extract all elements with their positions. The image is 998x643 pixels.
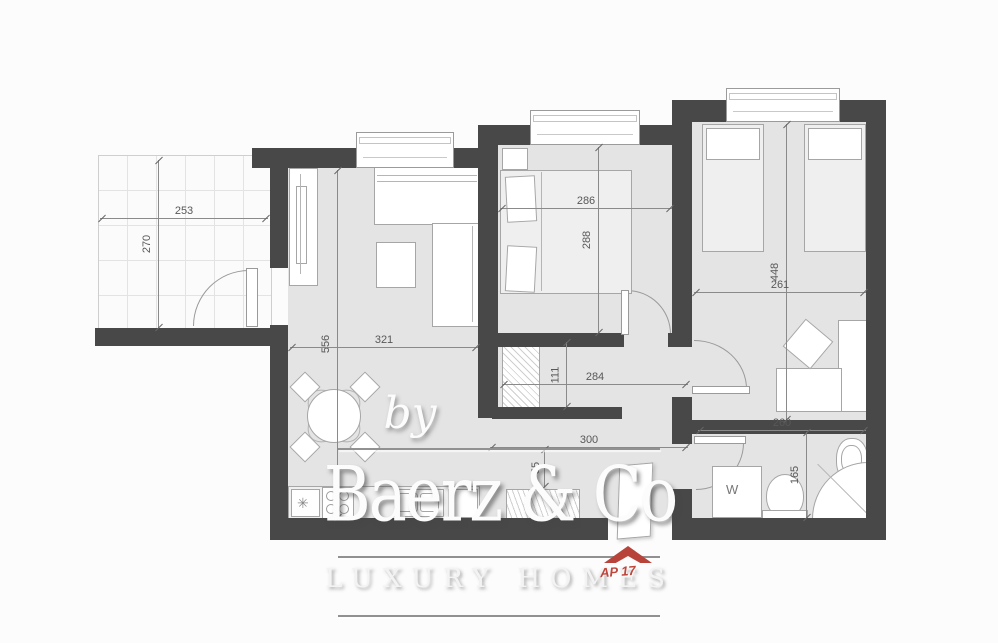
bedroom2-window (726, 88, 840, 122)
wall-bedroom2-left-lower (672, 397, 692, 420)
sofa-back-line (377, 181, 477, 182)
bathroom-door-leaf (694, 436, 746, 444)
wall-right (866, 100, 886, 540)
wall-bottom-right (672, 518, 886, 540)
dimension-bedroom2-length: 448 (786, 124, 787, 420)
dimension-label: 300 (580, 434, 598, 446)
dimension-label: 286 (577, 195, 595, 207)
bedroom1-window (530, 110, 640, 145)
wall-niche-bottom (492, 407, 622, 419)
nightstand (502, 148, 528, 170)
pillow (505, 245, 537, 293)
wall-bedroom1-bedroom2 (672, 100, 692, 333)
watermark-prefix: by (350, 388, 470, 439)
wall-bedroom1-bottom-right (668, 333, 692, 347)
pillow (808, 128, 862, 160)
dimension-label: 253 (175, 205, 193, 217)
wall-top-living-left (252, 148, 362, 168)
dimension-living-width: 321 (290, 347, 478, 348)
living-room-window (356, 132, 454, 168)
dimension-terrace-depth: 270 (158, 160, 159, 328)
dimension-label: 556 (320, 335, 332, 353)
dimension-label: 321 (375, 334, 393, 346)
dimension-label: 270 (141, 235, 153, 253)
coffee-table (376, 242, 416, 288)
dimension-label: 284 (586, 371, 604, 383)
dimension-label: 261 (771, 279, 789, 291)
dimension-bedroom1-width: 286 (500, 208, 672, 209)
window-sill-line (363, 157, 447, 158)
wall-living-bedroom1 (478, 125, 498, 418)
washing-machine-label: W (726, 482, 738, 497)
sofa-back-line (377, 175, 477, 176)
bedroom2-door-leaf (692, 386, 750, 394)
desk-side (838, 320, 868, 412)
dimension-label: 260 (773, 417, 791, 429)
wardrobe (502, 342, 540, 410)
dimension-niche-depth: 111 (566, 342, 567, 407)
bedroom1-door-leaf (621, 290, 629, 335)
dimension-label: 111 (550, 366, 562, 383)
dimension-niche-width: 284 (502, 384, 688, 385)
tv (296, 186, 307, 264)
unit-badge: AP 17 (600, 563, 637, 580)
sofa-back-line (472, 226, 473, 322)
wall-left-lower (270, 325, 288, 540)
dimension-terrace-width: 253 (100, 218, 268, 219)
shower-diagonal (817, 464, 869, 516)
window-sill-line (733, 111, 833, 112)
terrace-door-leaf (246, 268, 258, 327)
dimension-bathroom-width: 260 (698, 430, 866, 431)
dimension-bedroom1-length: 288 (598, 147, 599, 333)
window-frame-line (533, 115, 637, 122)
pillow (505, 175, 537, 223)
tv-line (300, 174, 301, 274)
dimension-label: 165 (789, 466, 801, 484)
wall-bedroom1-bottom-left (492, 333, 624, 347)
wall-top-living-right (450, 148, 478, 168)
window-frame-line (729, 93, 837, 100)
window-sill-line (537, 134, 633, 135)
dimension-bathroom-depth: 165 (806, 432, 807, 518)
dimension-bedroom2-width: 261 (694, 292, 866, 293)
watermark-brand: Baerz & Co (320, 452, 680, 539)
terrace-wall (95, 328, 270, 346)
pillow (706, 128, 760, 160)
dimension-label: 288 (581, 231, 593, 249)
sofa-chaise (374, 166, 482, 225)
blanket-line (541, 172, 542, 291)
watermark-divider (338, 448, 660, 450)
hob-icon: ✳ (297, 496, 309, 510)
watermark-divider (338, 615, 660, 617)
window-frame-line (359, 137, 451, 144)
floor-plan: ✳ W 253 270 556 32 (0, 0, 998, 643)
sofa-right-section (432, 223, 482, 327)
